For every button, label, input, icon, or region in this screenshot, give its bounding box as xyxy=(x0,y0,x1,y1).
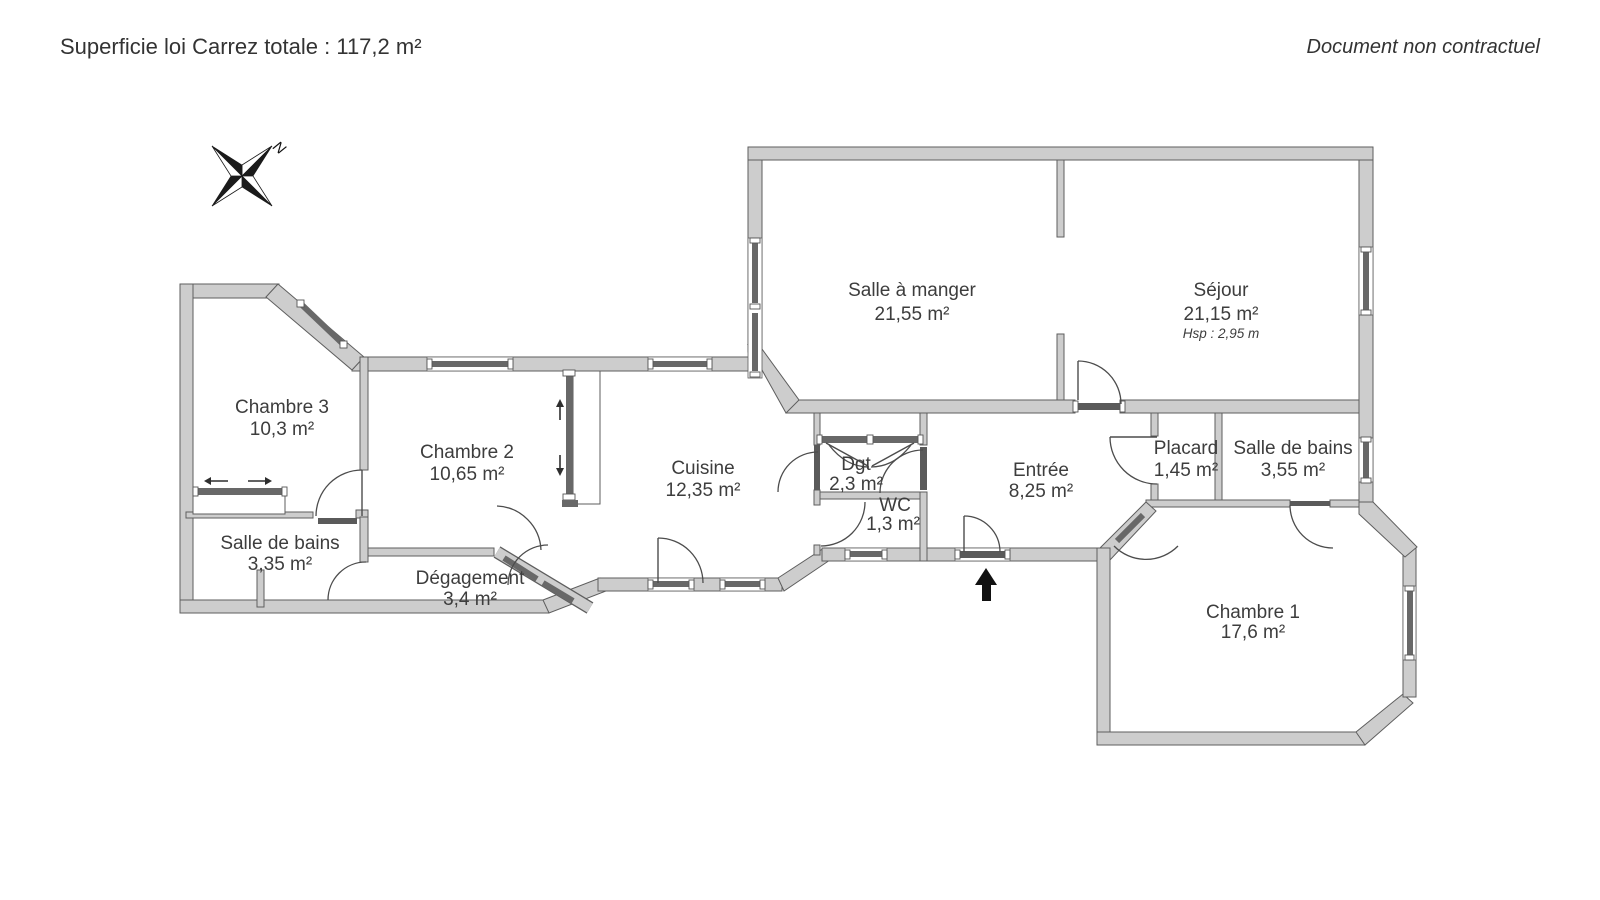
room-area: 1,3 m² xyxy=(866,514,920,535)
room-name: Chambre 3 xyxy=(235,397,329,418)
room-name: Séjour xyxy=(1194,280,1250,301)
room-label-salle-a-manger: Salle à manger 21,55 m² xyxy=(848,280,976,325)
walls xyxy=(180,147,1417,745)
floor-plan-page: Superficie loi Carrez totale : 117,2 m² … xyxy=(0,0,1600,900)
room-name: Placard xyxy=(1154,438,1218,459)
room-label-cuisine: Cuisine 12,35 m² xyxy=(666,458,741,501)
room-area: 21,55 m² xyxy=(875,304,950,325)
room-area: 1,45 m² xyxy=(1154,460,1218,481)
room-area: 17,6 m² xyxy=(1221,622,1285,643)
room-area: 3,4 m² xyxy=(443,589,497,610)
room-label-salle-de-bains-gauche: Salle de bains 3,35 m² xyxy=(220,533,339,575)
room-name: Chambre 2 xyxy=(420,442,514,463)
room-name: Dégagement xyxy=(416,568,526,589)
room-area: 3,35 m² xyxy=(248,554,312,575)
floor-plan: Superficie loi Carrez totale : 117,2 m² … xyxy=(0,0,1600,900)
room-name: Salle de bains xyxy=(220,533,339,554)
disclaimer-text: Document non contractuel xyxy=(1307,36,1541,58)
total-area-text: Superficie loi Carrez totale : 117,2 m² xyxy=(60,34,422,59)
room-area: 12,35 m² xyxy=(666,480,741,501)
room-label-salle-de-bains-droite: Salle de bains 3,55 m² xyxy=(1233,438,1352,481)
room-name: Entrée xyxy=(1013,460,1069,481)
room-label-sejour: Séjour 21,15 m² Hsp : 2,95 m xyxy=(1183,280,1260,341)
room-label-wc: WC 1,3 m² xyxy=(866,495,920,535)
room-name: Salle à manger xyxy=(848,280,976,301)
room-ceiling-height: Hsp : 2,95 m xyxy=(1183,326,1260,341)
compass-rose-icon: N xyxy=(212,138,289,206)
room-name: Dgt xyxy=(841,454,871,475)
room-label-chambre3: Chambre 3 10,3 m² xyxy=(235,397,329,440)
room-name: Cuisine xyxy=(671,458,734,479)
entrance-arrow-icon xyxy=(975,568,997,601)
room-name: Chambre 1 xyxy=(1206,602,1300,623)
room-label-dgt: Dgt 2,3 m² xyxy=(829,454,883,495)
room-label-entree: Entrée 8,25 m² xyxy=(1009,460,1073,502)
room-label-chambre1: Chambre 1 17,6 m² xyxy=(1206,602,1300,643)
room-area: 2,3 m² xyxy=(829,474,883,495)
room-area: 10,65 m² xyxy=(430,464,505,485)
room-area: 8,25 m² xyxy=(1009,481,1073,502)
room-area: 21,15 m² xyxy=(1184,304,1259,325)
compass-north-label: N xyxy=(269,138,288,158)
room-label-chambre2: Chambre 2 10,65 m² xyxy=(420,442,514,485)
room-name: WC xyxy=(879,495,911,516)
room-area: 10,3 m² xyxy=(250,419,314,440)
room-name: Salle de bains xyxy=(1233,438,1352,459)
room-label-placard: Placard 1,45 m² xyxy=(1154,438,1218,481)
room-area: 3,55 m² xyxy=(1261,460,1325,481)
